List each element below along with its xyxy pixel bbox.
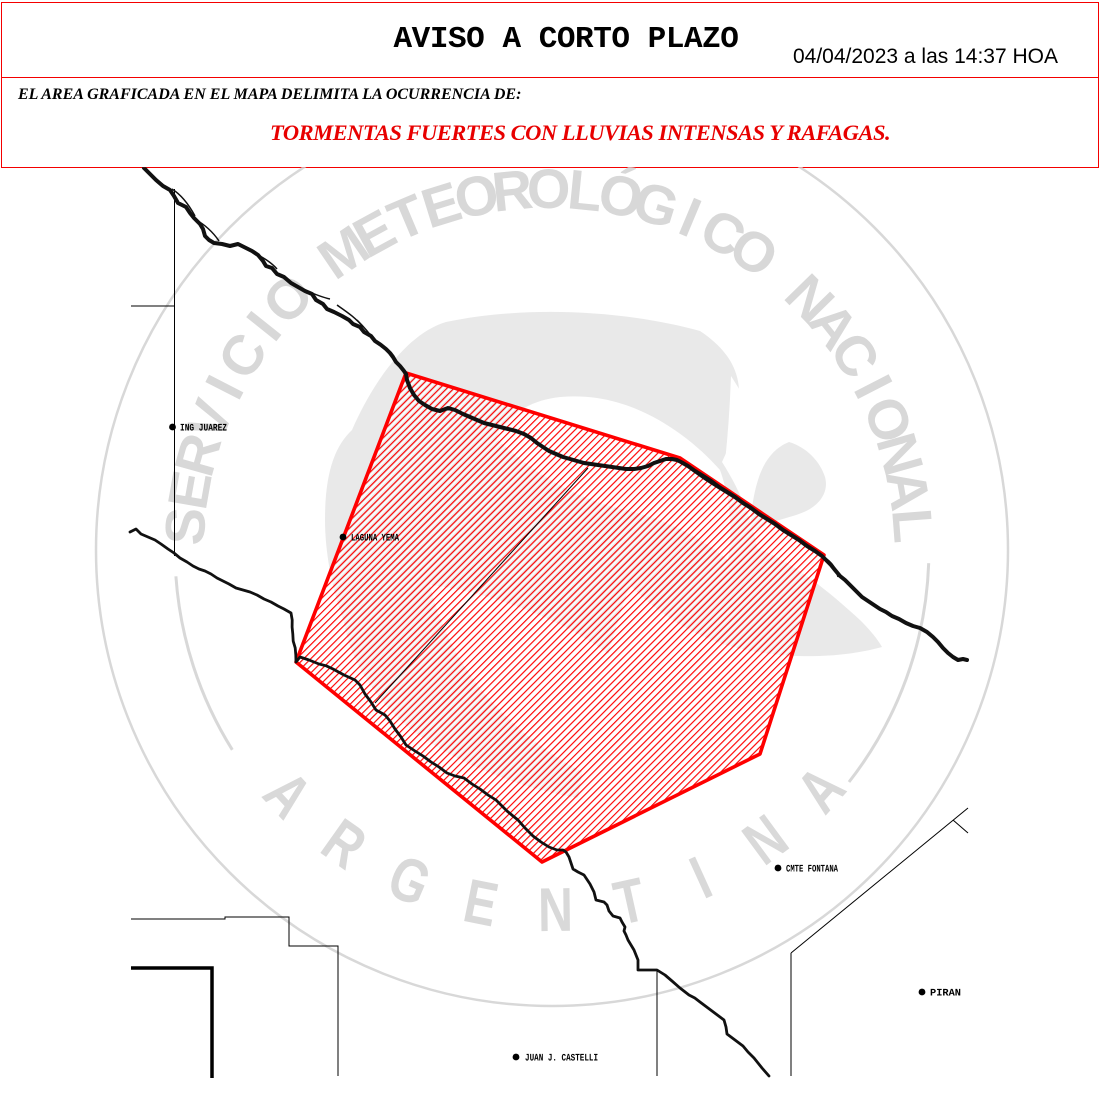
svg-text:JUAN J. CASTELLI: JUAN J. CASTELLI [525, 1054, 598, 1065]
svg-text:E: E [458, 866, 503, 940]
svg-text:ING JUAREZ: ING JUAREZ [180, 424, 227, 435]
svg-text:I: I [680, 843, 721, 912]
svg-text:R: R [310, 806, 378, 883]
svg-text:T: T [608, 864, 652, 938]
svg-text:G: G [379, 841, 441, 919]
svg-text:LAGUNA YEMA: LAGUNA YEMA [351, 534, 399, 545]
svg-text:A: A [251, 758, 325, 831]
svg-text:A: A [783, 753, 858, 825]
svg-text:PIRAN: PIRAN [930, 989, 961, 1000]
svg-text:L: L [880, 506, 945, 545]
svg-text:N: N [538, 875, 574, 944]
svg-text:O: O [527, 157, 571, 220]
svg-text:CMTE FONTANA: CMTE FONTANA [786, 865, 838, 876]
